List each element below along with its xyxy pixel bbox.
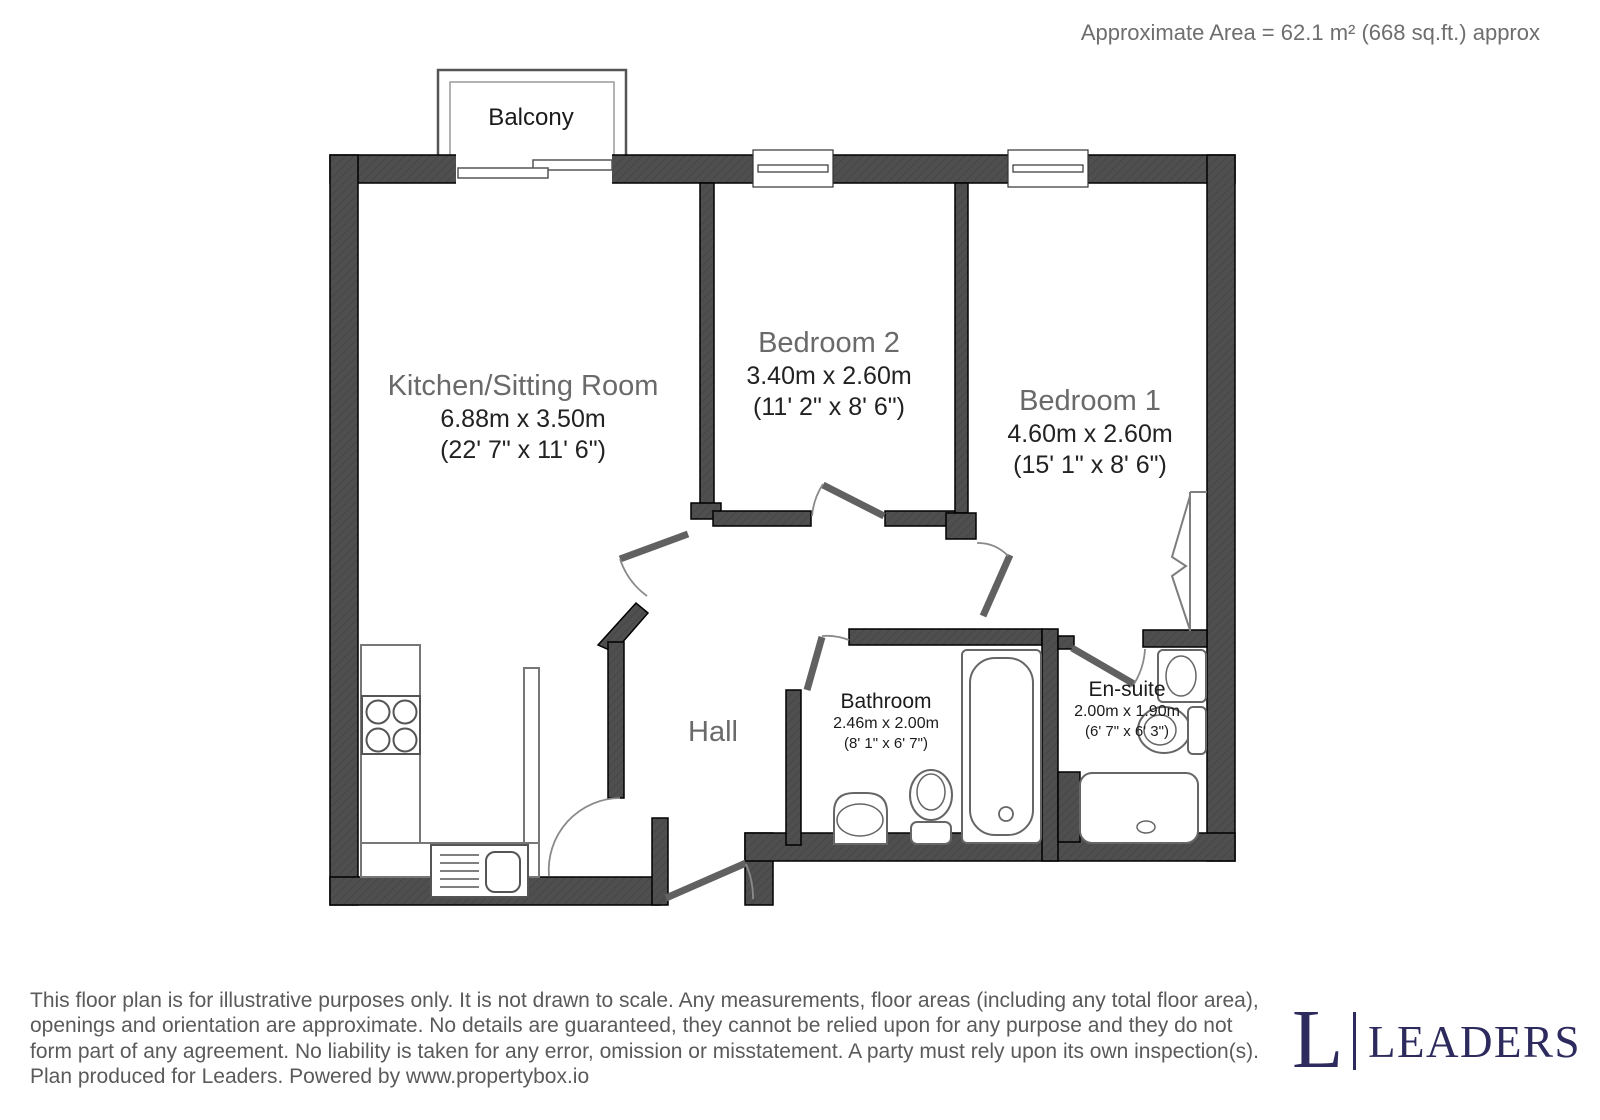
disclaimer-line: openings and orientation are approximate…	[30, 1013, 1259, 1038]
window-icon	[1008, 150, 1088, 187]
floor-plan-drawing	[0, 0, 1600, 1120]
balcony-label: Balcony	[488, 104, 573, 132]
wardrobe-icon	[1172, 492, 1207, 631]
approximate-area-text: Approximate Area = 62.1 m² (668 sq.ft.) …	[1081, 20, 1540, 46]
disclaimer-line: Plan produced for Leaders. Powered by ww…	[30, 1064, 1259, 1089]
room-dimensions-metric: 2.46m x 2.00m	[833, 714, 939, 734]
room-dimensions-metric: 6.88m x 3.50m	[388, 404, 659, 435]
en-suite-label: En-suite 2.00m x 1.90m (6' 7" x 6' 3")	[1074, 678, 1180, 741]
room-dimensions-metric: 2.00m x 1.90m	[1074, 702, 1180, 722]
disclaimer-text: This floor plan is for illustrative purp…	[30, 988, 1259, 1090]
room-dimensions-imperial: (22' 7" x 11' 6")	[388, 435, 659, 466]
room-dimensions-metric: 4.60m x 2.60m	[1007, 419, 1172, 450]
hob-icon	[362, 696, 420, 754]
leaders-logo-initial: L	[1292, 998, 1343, 1082]
kitchen-counter	[361, 645, 539, 877]
toilet-icon	[910, 770, 952, 844]
room-dimensions-imperial: (11' 2" x 8' 6")	[746, 392, 911, 423]
kitchen-sitting-room-label: Kitchen/Sitting Room 6.88m x 3.50m (22' …	[388, 369, 659, 466]
window-icon	[753, 150, 833, 187]
bedroom-2-label: Bedroom 2 3.40m x 2.60m (11' 2" x 8' 6")	[746, 326, 911, 423]
sliding-door-icon	[456, 154, 612, 184]
disclaimer-line: form part of any agreement. No liability…	[30, 1039, 1259, 1064]
leaders-logo-divider	[1353, 1012, 1356, 1070]
disclaimer-line: This floor plan is for illustrative purp…	[30, 988, 1259, 1013]
room-name: Bedroom 1	[1007, 384, 1172, 419]
hall-label: Hall	[688, 716, 738, 749]
room-dimensions-metric: 3.40m x 2.60m	[746, 361, 911, 392]
room-dimensions-imperial: (6' 7" x 6' 3")	[1074, 722, 1180, 741]
room-dimensions-imperial: (15' 1" x 8' 6")	[1007, 450, 1172, 481]
shower-tray-icon	[1080, 773, 1198, 843]
room-dimensions-imperial: (8' 1" x 6' 7")	[833, 734, 939, 753]
wash-basin-icon	[834, 793, 887, 844]
kitchen-sink-icon	[431, 845, 528, 897]
room-name: Bedroom 2	[746, 326, 911, 361]
room-name: En-suite	[1074, 678, 1180, 702]
floorplan-page: Approximate Area = 62.1 m² (668 sq.ft.) …	[0, 0, 1600, 1120]
room-name: Kitchen/Sitting Room	[388, 369, 659, 404]
room-name: Bathroom	[833, 690, 939, 714]
bedroom-1-label: Bedroom 1 4.60m x 2.60m (15' 1" x 8' 6")	[1007, 384, 1172, 481]
leaders-logo-wordmark: LEADERS	[1368, 1018, 1581, 1066]
bathtub-icon	[962, 650, 1041, 843]
bathroom-label: Bathroom 2.46m x 2.00m (8' 1" x 6' 7")	[833, 690, 939, 753]
